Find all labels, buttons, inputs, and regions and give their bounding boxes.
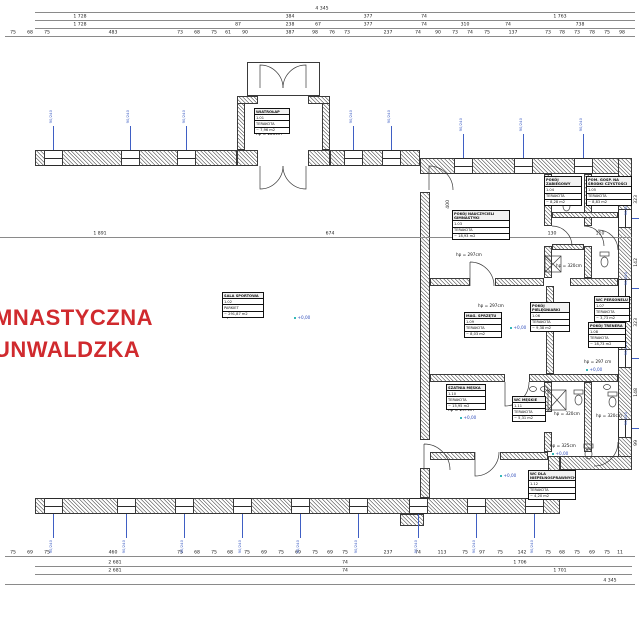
room-name: POKÓJ ZABIEGOWY: [545, 177, 581, 187]
room-label-box: POKÓJ PIELĘGNIARKI1.06TERAKOTA~ 9,38 m2: [530, 302, 570, 332]
door-arc: [424, 444, 450, 470]
room-label-box: POKÓJ NAUCZYCIELI GIMNASTYKI1.03TERAKOTA…: [452, 210, 510, 240]
door-arc: [552, 226, 572, 246]
room-name: POKÓJ PIELĘGNIARKI: [531, 303, 569, 313]
room-area: ~ 18,73 m2: [589, 342, 625, 347]
toilet-icon: [574, 390, 583, 405]
door-arc: [260, 166, 283, 189]
room-area: ~ 8,83 m2: [587, 200, 631, 205]
door-arc: [283, 65, 306, 88]
sink-icon: [530, 387, 537, 392]
door-arc: [594, 442, 618, 466]
red-label-line2: UNWALDZKA: [0, 337, 140, 363]
room-area: ~ 291,87 m2: [223, 312, 263, 317]
door-arc: [429, 166, 453, 190]
room-area: ~ 8,28 m2: [545, 200, 581, 205]
door-arc: [584, 226, 604, 246]
room-label-box: SALA SPORTOWA1.02PARKIET~ 291,87 m2: [222, 292, 264, 318]
room-label-box: POKÓJ ZABIEGOWY1.04TERAKOTA~ 8,28 m2: [544, 176, 582, 206]
floor-plan-canvas: MNASTYCZNA UNWALDZKA: [0, 0, 640, 640]
room-label-box: POM. GOSP. NA ŚRODKI CZYSTOŚCI1.05TERAKO…: [586, 176, 632, 206]
room-label-box: WIATROŁAP1.01TERAKOTA~ 7,96 m2: [254, 108, 290, 134]
room-area: ~ 4,20 m2: [529, 494, 575, 499]
toilet-icon: [600, 252, 609, 267]
red-label-line1: MNASTYCZNA: [0, 305, 153, 331]
room-label-box: MAG. SPRZĘTU1.09TERAKOTA~ 8,03 m2: [464, 312, 502, 338]
room-label-box: WC PERSONELU1.07TERAKOTA~ 3,73 m2: [594, 296, 630, 322]
room-area: ~ 5,31 m2: [513, 416, 545, 421]
room-name: POKÓJ NAUCZYCIELI GIMNASTYKI: [453, 211, 509, 221]
room-label-box: WC DLA NIEPEŁNOSPRAWNYCH1.12TERAKOTA~ 4,…: [528, 470, 576, 500]
toilet-icon: [608, 392, 617, 407]
toilet-icon: [584, 444, 593, 459]
room-label-box: SZATNIA MĘSKA1.10TERAKOTA~ 15,95 m2: [446, 384, 486, 410]
room-area: ~ 9,38 m2: [531, 326, 569, 331]
shower-icon: [548, 390, 566, 410]
room-area: ~ 3,73 m2: [595, 316, 629, 321]
room-area: ~ 7,96 m2: [255, 128, 289, 133]
room-area: ~ 8,03 m2: [465, 332, 501, 337]
door-arc: [283, 166, 306, 189]
room-label-box: POKÓJ TRENERA1.08TERAKOTA~ 18,73 m2: [588, 322, 626, 348]
door-arc: [470, 262, 494, 286]
door-arc: [260, 65, 283, 88]
room-area: ~ 15,95 m2: [447, 404, 485, 409]
door-arc: [475, 452, 499, 476]
door-arc: [598, 230, 618, 250]
room-name: POM. GOSP. NA ŚRODKI CZYSTOŚCI: [587, 177, 631, 187]
room-name: WC DLA NIEPEŁNOSPRAWNYCH: [529, 471, 575, 481]
sink-icon: [604, 385, 611, 390]
room-area: ~ 18,93 m2: [453, 234, 509, 239]
sink-icon: [541, 387, 548, 392]
shower-icon: [545, 256, 561, 272]
room-label-box: WC MĘSKIE1.11TERAKOTA~ 5,31 m2: [512, 396, 546, 422]
